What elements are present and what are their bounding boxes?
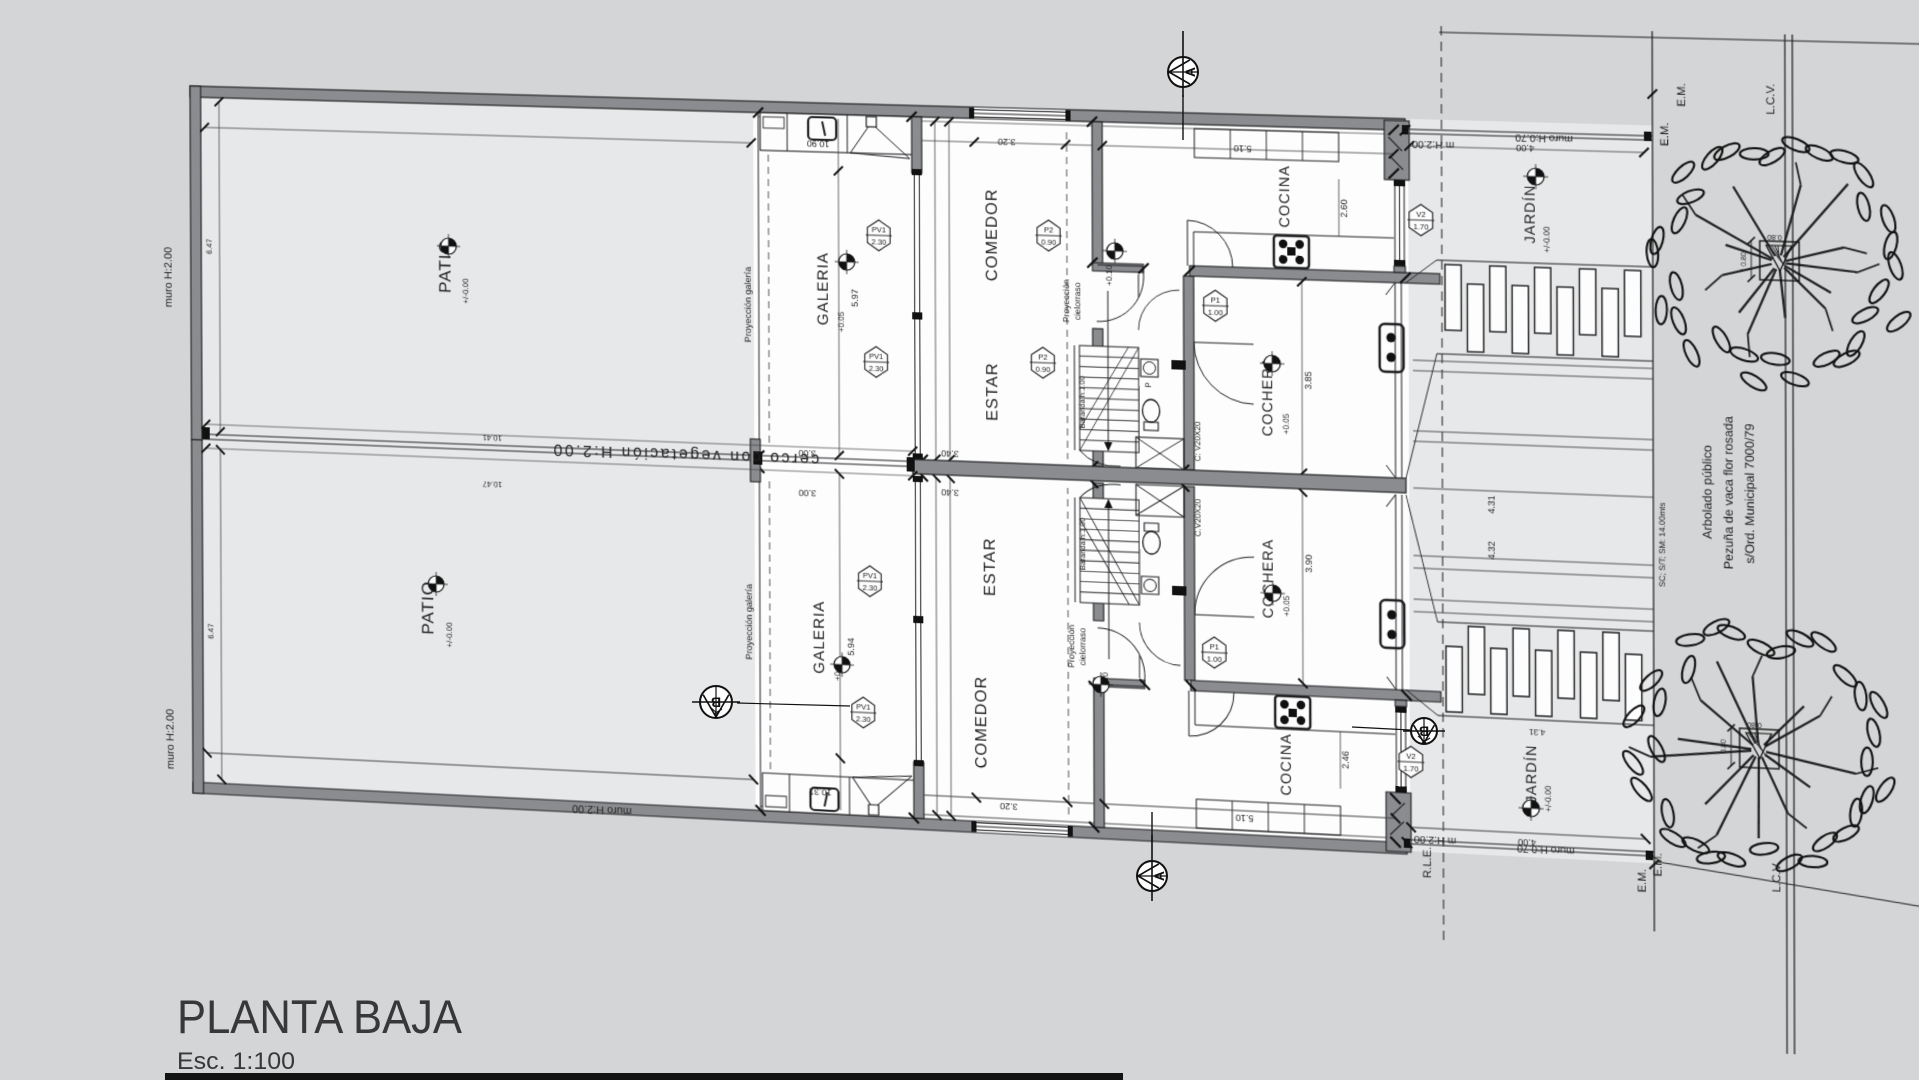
svg-text:A: A bbox=[1182, 67, 1198, 77]
svg-text:Esc. 1:100: Esc. 1:100 bbox=[177, 1048, 295, 1075]
svg-text:A: A bbox=[1151, 871, 1167, 881]
svg-text:PLANTA BAJA: PLANTA BAJA bbox=[177, 990, 463, 1043]
svg-text:B: B bbox=[711, 695, 721, 711]
svg-text:B: B bbox=[1419, 724, 1429, 740]
